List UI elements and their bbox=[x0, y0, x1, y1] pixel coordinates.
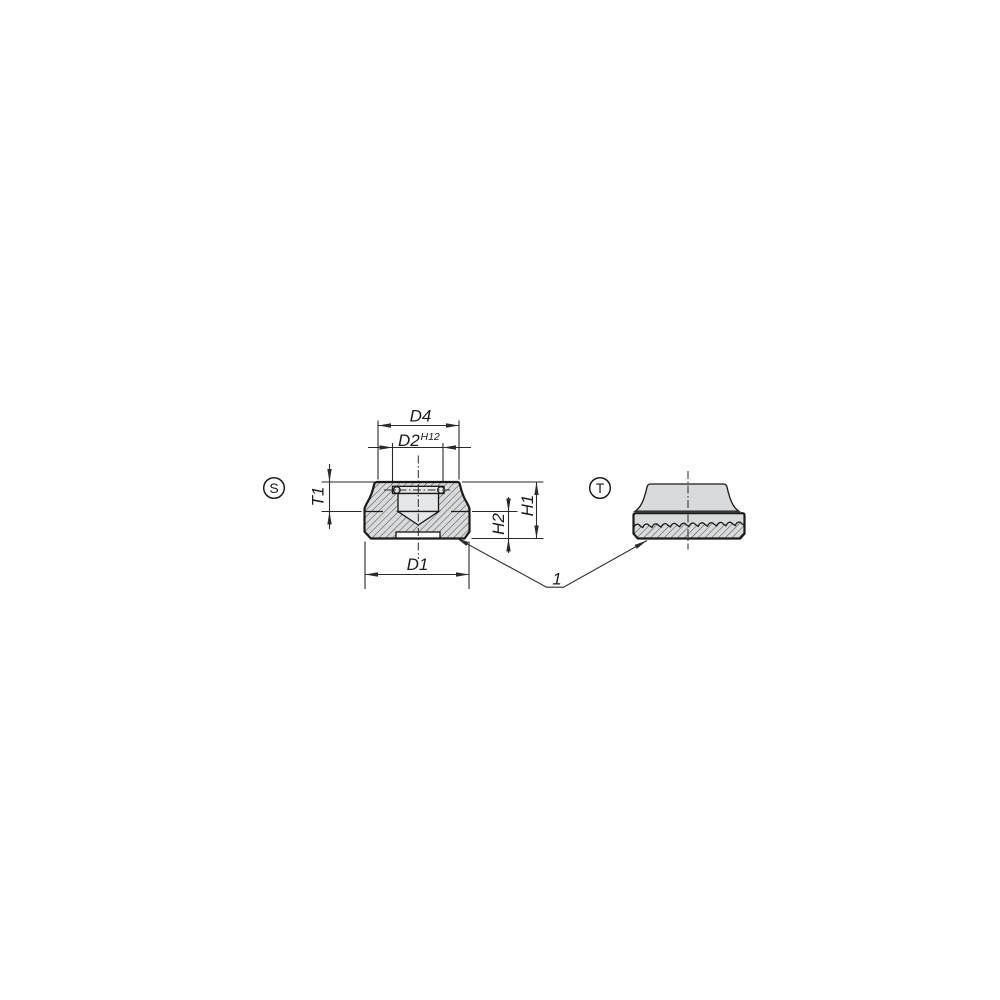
view-badge-s-label: S bbox=[269, 480, 278, 496]
engineering-drawing-canvas: D4 D2 H12 T1 H1 H2 D1 1 S T bbox=[0, 0, 1000, 1000]
side-flange bbox=[635, 484, 739, 511]
view-badge-t-label: T bbox=[596, 480, 605, 496]
label-h1: H1 bbox=[518, 495, 537, 517]
label-d2: D2 bbox=[398, 431, 420, 450]
label-t1: T1 bbox=[309, 487, 328, 507]
page-background bbox=[0, 0, 1000, 1000]
label-callout-1: 1 bbox=[552, 570, 561, 589]
label-d2-tolerance: H12 bbox=[421, 431, 440, 443]
side-view bbox=[634, 484, 745, 539]
label-h2: H2 bbox=[489, 513, 508, 535]
technical-drawing-page: D4 D2 H12 T1 H1 H2 D1 1 S T bbox=[0, 0, 1000, 1000]
label-d1: D1 bbox=[407, 555, 429, 574]
label-d4: D4 bbox=[410, 407, 432, 426]
